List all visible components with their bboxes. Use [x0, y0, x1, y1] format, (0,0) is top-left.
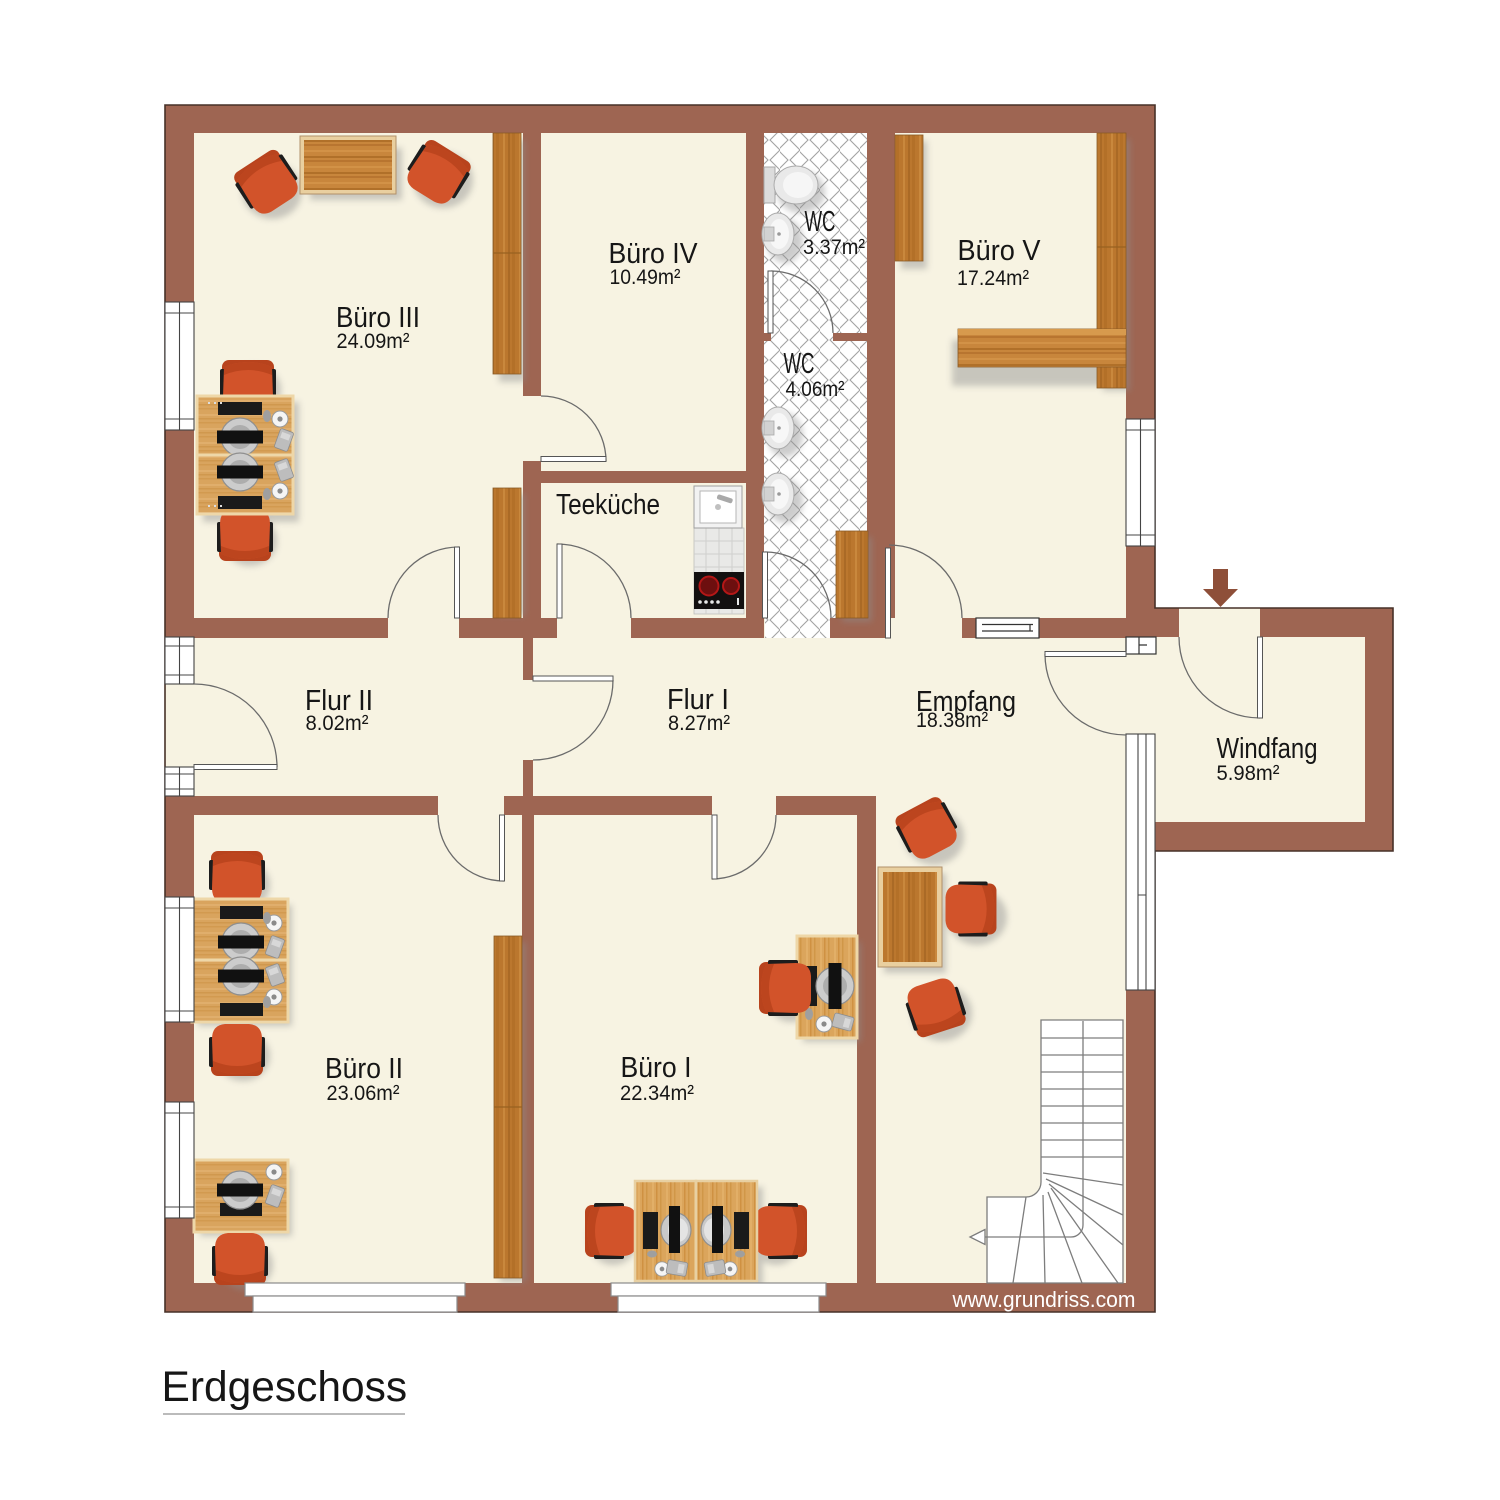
svg-text:17.24m²: 17.24m²	[957, 266, 1029, 290]
svg-text:Erdgeschoss: Erdgeschoss	[162, 1364, 408, 1411]
svg-text:8.27m²: 8.27m²	[668, 711, 730, 735]
svg-text:22.34m²: 22.34m²	[620, 1081, 694, 1105]
svg-text:18.38m²: 18.38m²	[916, 708, 988, 732]
svg-text:WC: WC	[784, 348, 815, 380]
svg-text:5.98m²: 5.98m²	[1217, 761, 1280, 785]
svg-text:10.49m²: 10.49m²	[610, 265, 681, 289]
svg-text:4.06m²: 4.06m²	[786, 377, 845, 401]
svg-text:Büro I: Büro I	[621, 1052, 692, 1084]
svg-text:8.02m²: 8.02m²	[306, 711, 369, 735]
svg-text:Büro V: Büro V	[958, 235, 1041, 267]
svg-text:WC: WC	[805, 206, 836, 238]
svg-text:24.09m²: 24.09m²	[337, 329, 410, 353]
svg-text:23.06m²: 23.06m²	[327, 1081, 400, 1105]
svg-text:www.grundriss.com: www.grundriss.com	[952, 1287, 1136, 1312]
svg-text:Teeküche: Teeküche	[556, 489, 660, 521]
svg-text:3.37m²: 3.37m²	[803, 235, 865, 259]
